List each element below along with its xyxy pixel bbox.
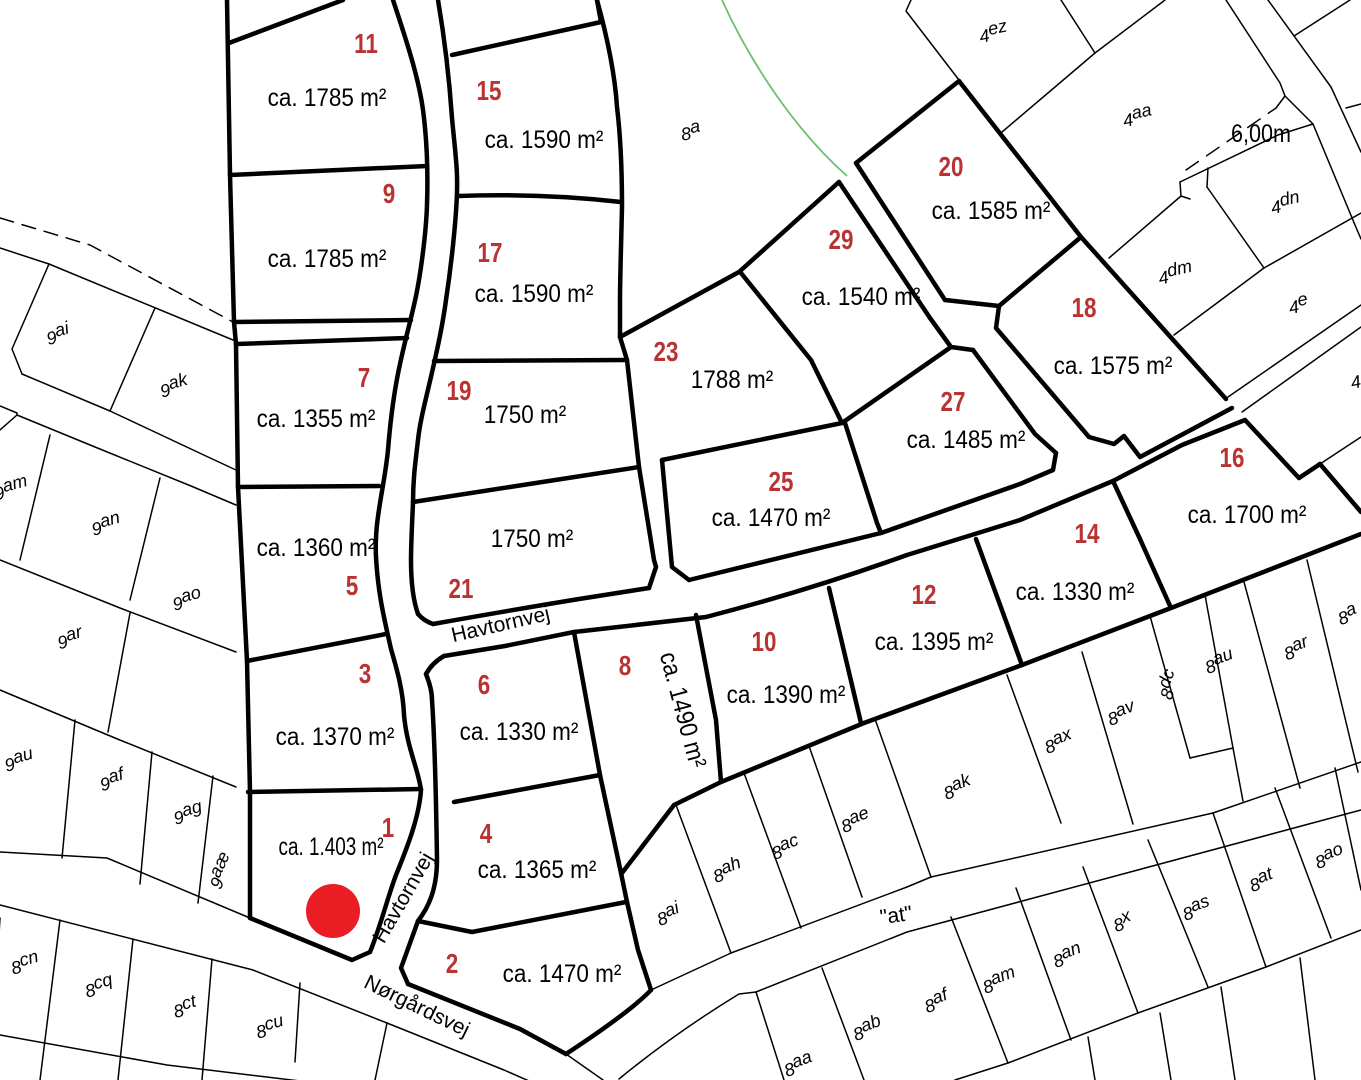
svg-text:2: 2 xyxy=(446,948,459,979)
svg-text:"at": "at" xyxy=(878,902,913,929)
svg-text:18: 18 xyxy=(1072,292,1097,323)
svg-text:ca. 1590 m²: ca. 1590 m² xyxy=(475,280,594,308)
svg-text:ca. 1330 m²: ca. 1330 m² xyxy=(460,718,579,746)
svg-text:14: 14 xyxy=(1075,518,1100,549)
svg-text:10: 10 xyxy=(752,626,777,657)
svg-text:15: 15 xyxy=(477,75,502,106)
svg-text:ca. 1390 m²: ca. 1390 m² xyxy=(727,681,846,709)
svg-text:ca. 1700 m²: ca. 1700 m² xyxy=(1188,501,1307,529)
svg-text:ca. 1470 m²: ca. 1470 m² xyxy=(503,960,622,988)
svg-text:1750 m²: 1750 m² xyxy=(491,525,574,553)
svg-text:5: 5 xyxy=(346,570,359,601)
svg-text:3: 3 xyxy=(359,658,372,689)
svg-text:ca. 1330 m²: ca. 1330 m² xyxy=(1016,578,1135,606)
svg-text:1: 1 xyxy=(382,812,395,843)
svg-text:ca. 1360 m²: ca. 1360 m² xyxy=(257,534,376,562)
svg-text:4: 4 xyxy=(480,818,493,849)
svg-text:ca. 1470 m²: ca. 1470 m² xyxy=(712,504,831,532)
svg-text:11: 11 xyxy=(354,28,378,59)
svg-text:ca. 1785 m²: ca. 1785 m² xyxy=(268,245,387,273)
svg-text:ca. 1355 m²: ca. 1355 m² xyxy=(257,405,376,433)
svg-text:ca. 1485 m²: ca. 1485 m² xyxy=(907,426,1026,454)
svg-text:25: 25 xyxy=(769,466,794,497)
svg-text:ca. 1365 m²: ca. 1365 m² xyxy=(478,856,597,884)
svg-text:19: 19 xyxy=(447,375,472,406)
svg-text:6: 6 xyxy=(478,669,491,700)
svg-text:ca. 1590 m²: ca. 1590 m² xyxy=(485,126,604,154)
svg-text:7: 7 xyxy=(358,362,371,393)
svg-text:29: 29 xyxy=(829,224,854,255)
svg-text:27: 27 xyxy=(941,386,966,417)
svg-text:8: 8 xyxy=(619,650,632,681)
svg-text:1788 m²: 1788 m² xyxy=(691,366,774,394)
svg-text:6,00m: 6,00m xyxy=(1231,120,1291,148)
svg-text:ca. 1585 m²: ca. 1585 m² xyxy=(932,197,1051,225)
svg-text:17: 17 xyxy=(478,237,503,268)
svg-text:9: 9 xyxy=(383,178,396,209)
svg-text:ca. 1785 m²: ca. 1785 m² xyxy=(268,84,387,112)
svg-text:ca. 1540 m²: ca. 1540 m² xyxy=(802,283,921,311)
svg-text:16: 16 xyxy=(1220,442,1245,473)
svg-text:ca. 1395 m²: ca. 1395 m² xyxy=(875,628,994,656)
svg-text:ca. 1370 m²: ca. 1370 m² xyxy=(276,723,395,751)
svg-text:23: 23 xyxy=(654,336,679,367)
svg-text:ca. 1.403 m²: ca. 1.403 m² xyxy=(279,833,384,861)
svg-text:ca. 1575 m²: ca. 1575 m² xyxy=(1054,352,1173,380)
svg-text:20: 20 xyxy=(939,151,964,182)
svg-text:1750 m²: 1750 m² xyxy=(484,401,567,429)
svg-text:12: 12 xyxy=(912,579,937,610)
svg-text:21: 21 xyxy=(449,573,474,604)
